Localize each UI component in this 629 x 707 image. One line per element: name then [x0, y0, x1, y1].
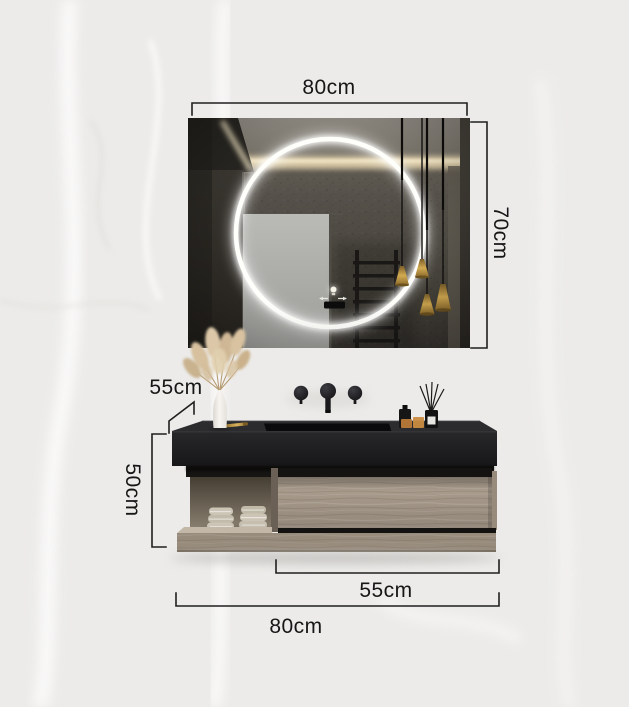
towel-stack — [207, 508, 234, 531]
label-mirror-width: 80cm — [302, 76, 355, 100]
label-drawer-width: 55cm — [359, 579, 412, 603]
white-vase — [213, 390, 227, 429]
label-cabinet-height: 50cm — [120, 463, 144, 516]
dim-bracket-mirror-height — [471, 122, 487, 348]
amber-jar — [401, 419, 412, 428]
towel-stack — [239, 506, 267, 529]
sink-basin — [264, 424, 392, 432]
faucet-handle-right — [348, 386, 362, 400]
diffuser-set — [399, 382, 444, 428]
amber-jar — [413, 417, 424, 428]
vanity-shadow — [170, 552, 500, 564]
drawer-side — [492, 471, 497, 530]
label-counter-depth: 55cm — [149, 376, 202, 400]
scene — [0, 0, 629, 707]
dim-bracket-overall-width — [176, 593, 499, 606]
faucet — [286, 383, 370, 413]
label-mirror-height: 70cm — [488, 206, 512, 259]
mirror-photo — [188, 118, 470, 348]
drawer — [278, 468, 497, 533]
dim-bracket-mirror-width — [192, 103, 467, 115]
diffuser-reeds — [420, 382, 444, 413]
dim-bracket-cabinet-height — [152, 434, 166, 547]
label-overall-width: 80cm — [269, 615, 322, 639]
faucet-handle-left — [294, 386, 308, 400]
product-dimension-image: 80cm 70cm 55cm 50cm 55cm 80cm — [0, 0, 629, 707]
